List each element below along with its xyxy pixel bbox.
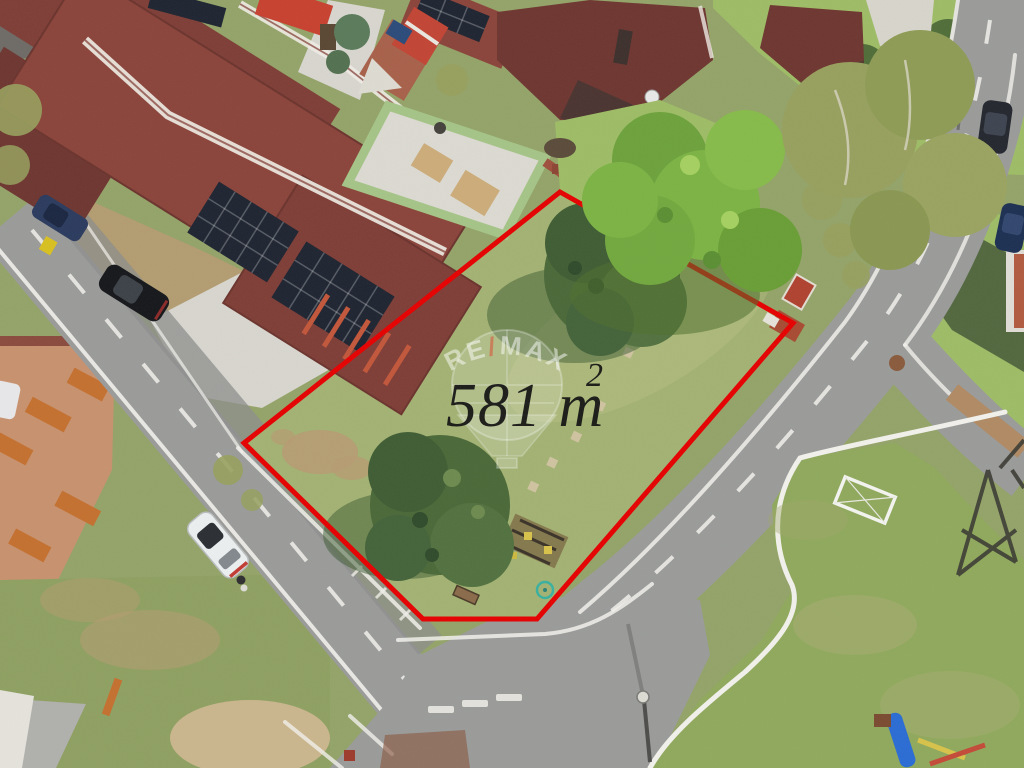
photo-grain-overlay <box>0 0 1024 768</box>
aerial-photo: RE/MAX 581 m 2 <box>0 0 1024 768</box>
